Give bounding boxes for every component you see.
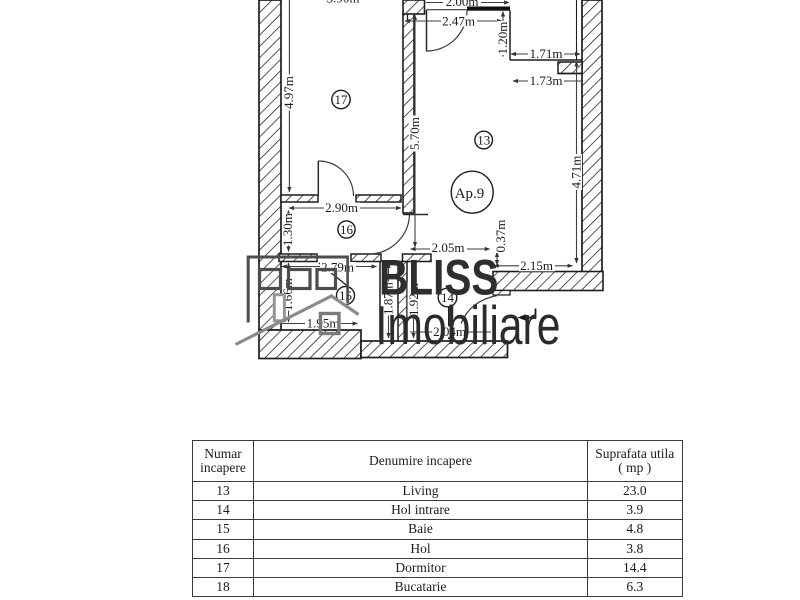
svg-text:2.15m: 2.15m <box>520 258 553 273</box>
svg-text:2.90m: 2.90m <box>325 200 358 215</box>
svg-text:3.90m: 3.90m <box>327 0 360 6</box>
svg-text:1.71m: 1.71m <box>530 46 563 61</box>
svg-text:1.30m: 1.30m <box>280 213 295 246</box>
svg-text:2.79m: 2.79m <box>321 260 354 275</box>
svg-text:5.70m: 5.70m <box>407 117 422 150</box>
svg-text:1.73m: 1.73m <box>530 73 563 88</box>
svg-text:1.20m: 1.20m <box>495 22 510 55</box>
svg-text:17: 17 <box>335 92 349 107</box>
svg-text:Imobiliare: Imobiliare <box>376 294 561 356</box>
svg-text:16: 16 <box>340 222 354 237</box>
svg-text:Ap.9: Ap.9 <box>455 186 485 202</box>
svg-text:2.47m: 2.47m <box>442 13 475 28</box>
svg-text:4.97m: 4.97m <box>281 76 296 109</box>
svg-text:13: 13 <box>477 133 490 148</box>
svg-text:0.37m: 0.37m <box>493 220 508 253</box>
svg-text:2.00m: 2.00m <box>446 0 479 9</box>
svg-text:1.95m: 1.95m <box>307 316 340 331</box>
svg-text:4.71m: 4.71m <box>568 156 583 189</box>
